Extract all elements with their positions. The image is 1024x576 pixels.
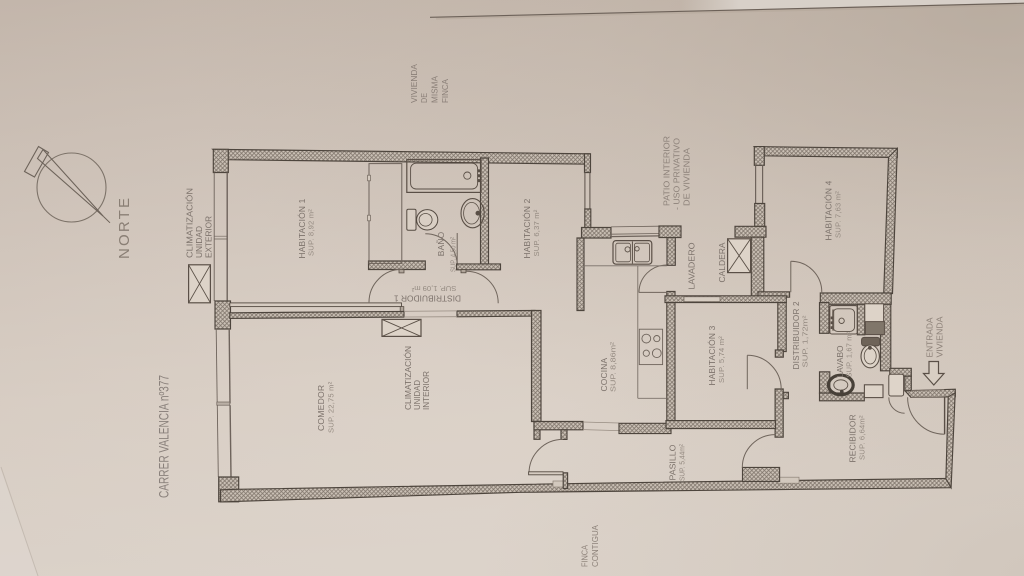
svg-text:HABITACIÓN 4: HABITACIÓN 4 xyxy=(824,180,834,240)
svg-text:SUP. 5,44m²: SUP. 5,44m² xyxy=(678,444,687,481)
svg-text:CONTIGUA: CONTIGUA xyxy=(591,524,600,567)
svg-text:NORTE: NORTE xyxy=(116,196,133,259)
svg-text:DISTRIBUIDOR 1: DISTRIBUIDOR 1 xyxy=(394,293,461,303)
svg-text:EXTERIOR: EXTERIOR xyxy=(204,216,214,258)
svg-text:SUP. 5,74 m²: SUP. 5,74 m² xyxy=(717,336,726,383)
svg-text:DE VIVIENDA: DE VIVIENDA xyxy=(683,147,692,206)
svg-text:SUP. 8,86m²: SUP. 8,86m² xyxy=(609,341,618,392)
svg-text:SUP. 1,67 m²: SUP. 1,67 m² xyxy=(845,331,854,377)
svg-text:COCINA: COCINA xyxy=(599,358,609,392)
svg-text:SUP. 1,09 m²: SUP. 1,09 m² xyxy=(411,284,456,293)
svg-text:SUP. 1,72m²: SUP. 1,72m² xyxy=(801,315,810,368)
svg-text:UNIDAD: UNIDAD xyxy=(194,226,204,258)
svg-text:DE: DE xyxy=(420,93,429,103)
svg-text:SUP. 7,63 m²: SUP. 7,63 m² xyxy=(834,191,843,238)
svg-text:LAVADERO: LAVADERO xyxy=(688,243,697,290)
svg-text:VIVIENDA: VIVIENDA xyxy=(410,63,419,103)
svg-text:ENTRADA: ENTRADA xyxy=(926,317,935,358)
svg-text:SUP. 4,50 m²: SUP. 4,50 m² xyxy=(449,237,458,272)
svg-text:BAÑO: BAÑO xyxy=(436,231,446,256)
svg-text:SUP. 6,64m²: SUP. 6,64m² xyxy=(858,415,867,460)
svg-text:SUP. 22,75 m²: SUP. 22,75 m² xyxy=(327,381,336,433)
svg-text:PASILLO: PASILLO xyxy=(668,444,678,481)
svg-text:COMEDOR: COMEDOR xyxy=(316,385,326,431)
svg-text:CARRER VALENCIA nº377: CARRER VALENCIA nº377 xyxy=(156,375,172,498)
svg-text:SUP. 8,92 m²: SUP. 8,92 m² xyxy=(307,209,316,256)
svg-text:CALDERA: CALDERA xyxy=(718,242,727,283)
svg-text:CLIMATIZACIÓN: CLIMATIZACIÓN xyxy=(185,188,195,258)
svg-text:- USO PRIVATIVO: - USO PRIVATIVO xyxy=(673,138,682,210)
svg-text:HABITACIÓN 3: HABITACIÓN 3 xyxy=(707,325,717,385)
svg-text:PATIO INTERIOR: PATIO INTERIOR xyxy=(663,136,672,206)
svg-text:HABITACIÓN 2: HABITACIÓN 2 xyxy=(522,198,532,258)
svg-text:RECIBIDOR: RECIBIDOR xyxy=(848,414,858,462)
svg-text:INTERIOR: INTERIOR xyxy=(421,371,431,410)
svg-text:MISMA: MISMA xyxy=(431,75,440,103)
svg-text:SUP. 6,37 m²: SUP. 6,37 m² xyxy=(532,209,541,256)
svg-text:VIVIENDA: VIVIENDA xyxy=(936,316,945,358)
svg-text:FINCA: FINCA xyxy=(441,78,450,103)
svg-text:FINCA: FINCA xyxy=(581,544,590,567)
svg-text:HABITACIÓN 1: HABITACIÓN 1 xyxy=(297,198,307,258)
